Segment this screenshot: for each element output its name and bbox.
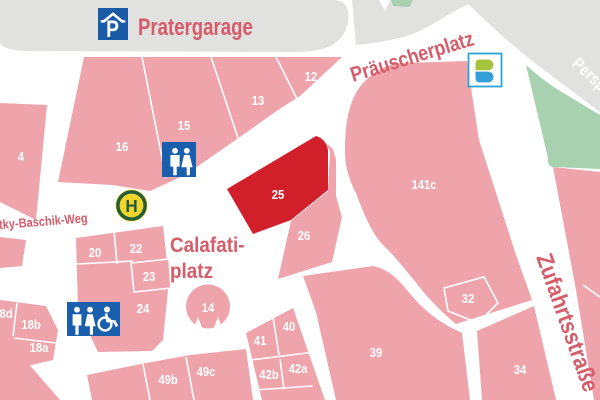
svg-text:42b: 42b bbox=[259, 367, 278, 382]
svg-text:49c: 49c bbox=[197, 364, 216, 379]
svg-text:32: 32 bbox=[462, 291, 475, 306]
svg-text:41: 41 bbox=[254, 333, 267, 348]
svg-text:P: P bbox=[106, 15, 119, 43]
svg-text:49b: 49b bbox=[158, 372, 177, 387]
svg-text:18a: 18a bbox=[30, 340, 49, 355]
svg-text:16: 16 bbox=[116, 139, 129, 154]
svg-text:20: 20 bbox=[89, 245, 102, 260]
svg-text:40: 40 bbox=[283, 319, 296, 334]
svg-text:H: H bbox=[125, 196, 137, 217]
svg-text:18b: 18b bbox=[21, 317, 40, 332]
svg-text:23: 23 bbox=[143, 269, 156, 284]
svg-text:141c: 141c bbox=[412, 177, 437, 192]
svg-text:34: 34 bbox=[514, 362, 527, 377]
svg-text:14: 14 bbox=[202, 300, 215, 315]
svg-text:Pratergarage: Pratergarage bbox=[138, 12, 253, 40]
svg-text:platz: platz bbox=[170, 260, 213, 283]
svg-text:39: 39 bbox=[370, 345, 383, 360]
svg-text:22: 22 bbox=[130, 241, 143, 256]
svg-text:12: 12 bbox=[305, 69, 318, 84]
svg-text:25: 25 bbox=[272, 187, 285, 202]
svg-text:15: 15 bbox=[178, 118, 191, 133]
svg-text:26: 26 bbox=[298, 228, 311, 243]
svg-text:4: 4 bbox=[18, 149, 25, 164]
svg-text:18d: 18d bbox=[0, 306, 13, 321]
svg-text:13: 13 bbox=[252, 93, 265, 108]
svg-text:Calafati-: Calafati- bbox=[170, 234, 245, 257]
svg-text:42a: 42a bbox=[289, 361, 308, 376]
svg-text:24: 24 bbox=[137, 301, 150, 316]
